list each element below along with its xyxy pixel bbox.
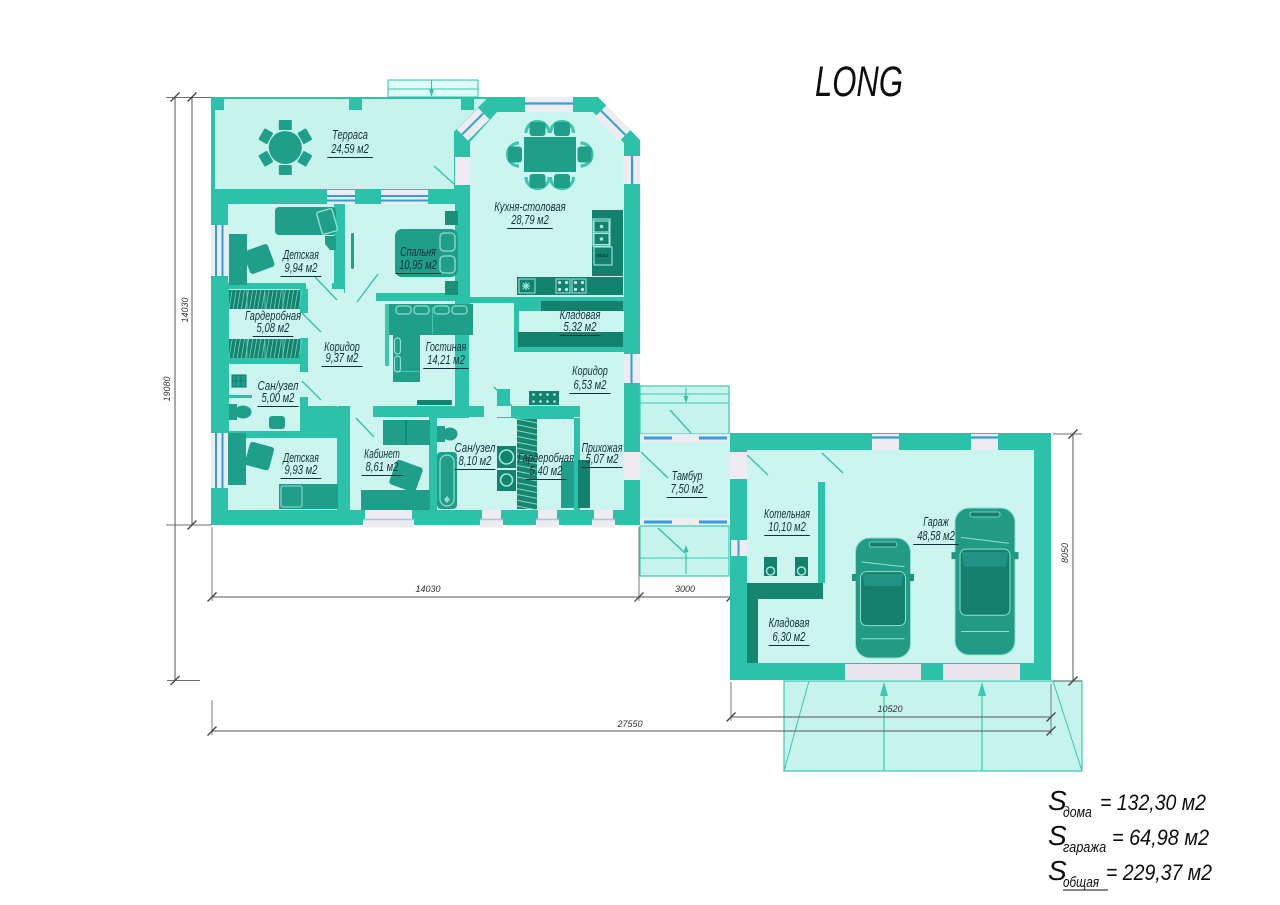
svg-text:5,00 м2: 5,00 м2 (262, 390, 295, 405)
svg-text:Гараж: Гараж (923, 514, 949, 529)
svg-text:9,93 м2: 9,93 м2 (285, 462, 318, 477)
svg-text:5,07 м2: 5,07 м2 (586, 451, 619, 466)
svg-text:6,30 м2: 6,30 м2 (773, 629, 806, 644)
svg-text:плош: плош (596, 253, 609, 259)
svg-text:3000: 3000 (675, 584, 695, 594)
svg-text:Кладовая: Кладовая (769, 615, 810, 630)
svg-text:= 229,37 м2: = 229,37 м2 (1106, 860, 1212, 885)
svg-text:6,53 м2: 6,53 м2 (574, 377, 607, 392)
svg-text:5,08 м2: 5,08 м2 (257, 320, 290, 335)
svg-text:дома: дома (1063, 804, 1092, 821)
svg-text:= 132,30 м2: = 132,30 м2 (1100, 790, 1206, 815)
svg-text:14030: 14030 (415, 584, 440, 594)
svg-text:5,32 м2: 5,32 м2 (564, 319, 597, 334)
svg-text:8,10 м2: 8,10 м2 (459, 453, 492, 468)
svg-text:9,94 м2: 9,94 м2 (285, 260, 318, 275)
svg-text:28,79 м2: 28,79 м2 (510, 212, 549, 227)
svg-text:7,50 м2: 7,50 м2 (671, 481, 704, 496)
svg-text:14030: 14030 (180, 297, 190, 322)
svg-text:27550: 27550 (616, 719, 642, 729)
svg-text:19080: 19080 (162, 376, 172, 401)
svg-text:10520: 10520 (877, 704, 902, 714)
svg-text:общая: общая (1063, 874, 1099, 891)
svg-text:9,37 м2: 9,37 м2 (326, 350, 359, 365)
svg-text:8050: 8050 (1060, 543, 1070, 563)
svg-text:48,58 м2: 48,58 м2 (917, 528, 955, 543)
svg-text:24,59 м2: 24,59 м2 (330, 141, 369, 156)
svg-text:LONG: LONG (815, 58, 903, 106)
svg-text:гаража: гаража (1063, 839, 1106, 856)
svg-text:8,61 м2: 8,61 м2 (366, 459, 399, 474)
svg-text:= 64,98 м2: = 64,98 м2 (1112, 825, 1209, 850)
svg-text:Коридор: Коридор (572, 363, 608, 378)
svg-text:10,10 м2: 10,10 м2 (768, 519, 806, 534)
svg-text:Терраса: Терраса (332, 127, 368, 142)
svg-text:14,21 м2: 14,21 м2 (427, 352, 465, 367)
svg-text:10,95 м2: 10,95 м2 (399, 257, 437, 272)
svg-text:5,40 м2: 5,40 м2 (530, 463, 563, 478)
